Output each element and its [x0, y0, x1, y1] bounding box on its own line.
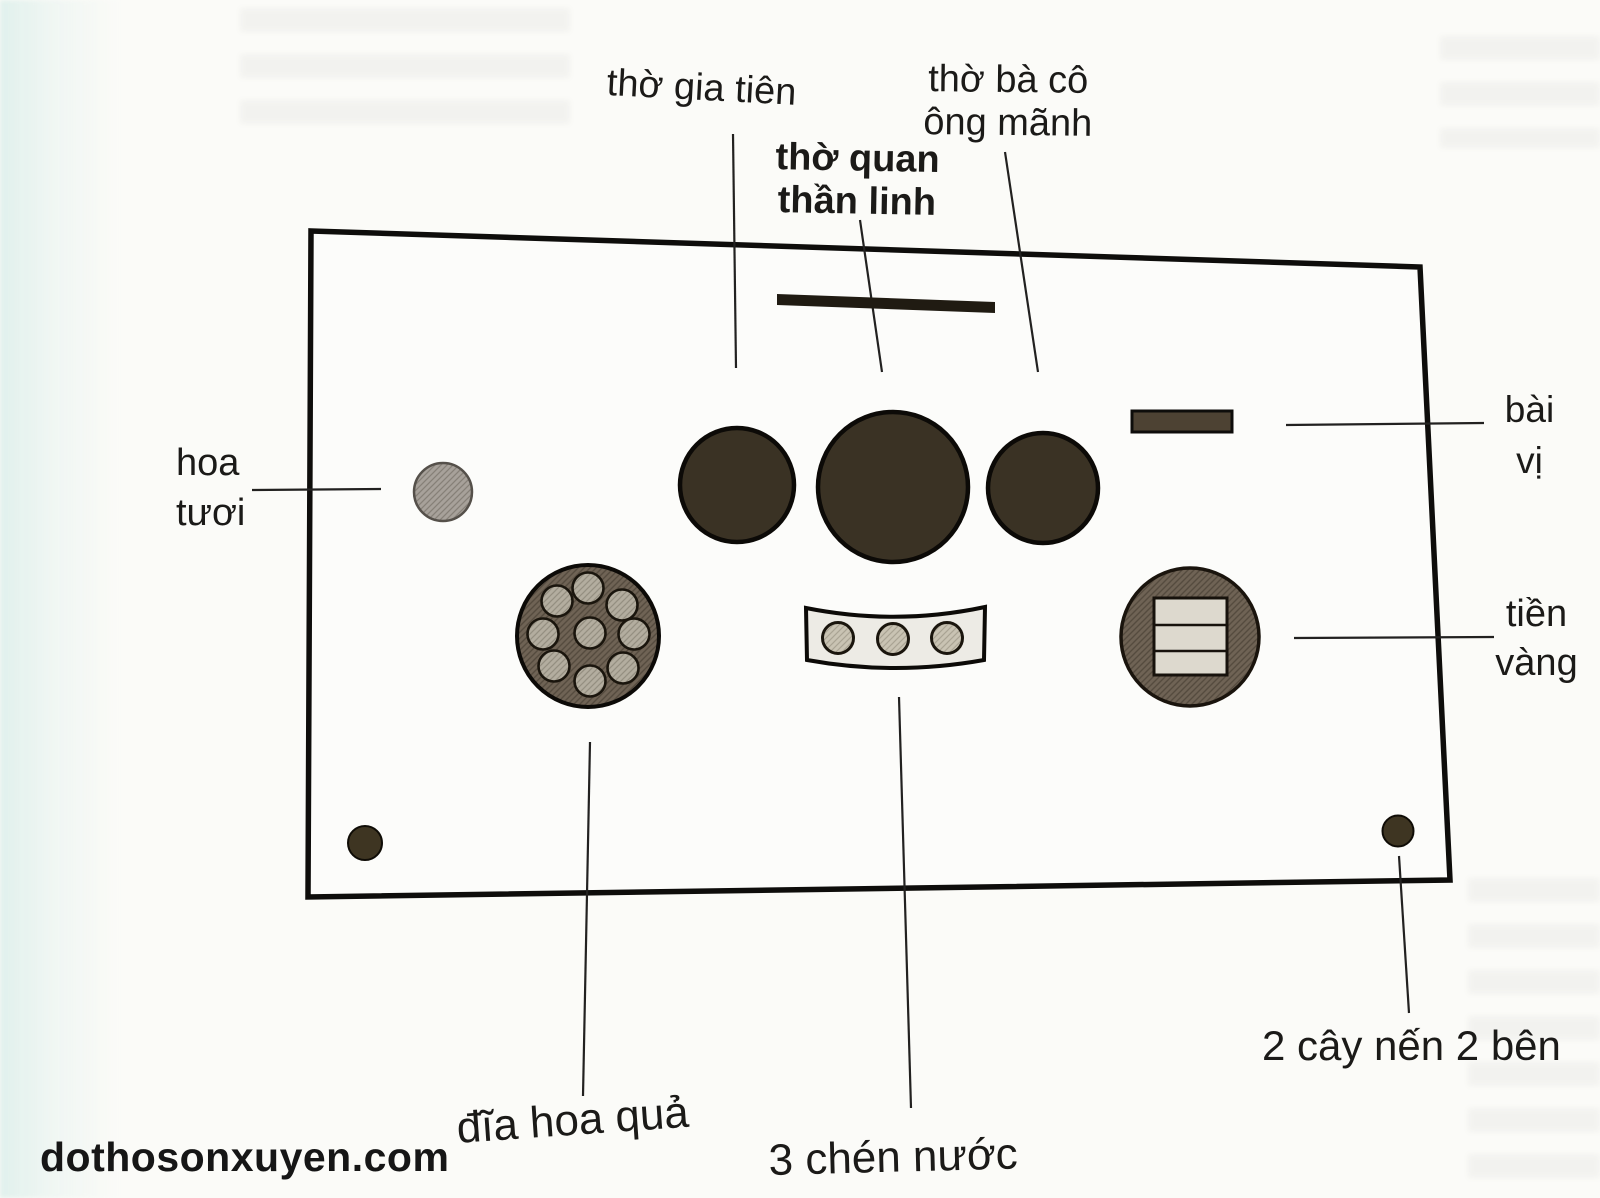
- fruit: [542, 586, 573, 617]
- candle-left: [348, 826, 382, 860]
- water-cup: [823, 623, 854, 654]
- fruit: [575, 666, 606, 697]
- label-ba-co-line2: ông mãnh: [915, 101, 1100, 145]
- label-ba-co-line1: thờ bà cô: [916, 58, 1101, 102]
- fruits: [528, 573, 650, 697]
- candle-right: [1383, 816, 1414, 847]
- bai-vi-tablet: [1132, 411, 1232, 432]
- water-cup: [932, 623, 963, 654]
- incense-bowl-center: [818, 412, 968, 562]
- altar-table-surface: [308, 231, 1450, 897]
- leader-hoa-tuoi: [252, 489, 381, 490]
- label-chen-nuoc: 3 chén nước: [768, 1129, 1018, 1185]
- fruit: [573, 573, 604, 604]
- water-cups: [823, 623, 963, 655]
- fruit: [528, 619, 559, 650]
- scanned-book-page: thờ gia tiên thờ quan thần linh thờ bà c…: [0, 0, 1600, 1198]
- label-hoa-tuoi-line1: hoa: [176, 438, 245, 488]
- label-bai-vi-line1: bài: [1492, 384, 1567, 435]
- fruit: [608, 653, 639, 684]
- leader-tien-vang: [1294, 637, 1494, 638]
- label-tien-vang-line1: tiền: [1474, 590, 1599, 639]
- label-tien-vang: tiền vàng: [1474, 590, 1599, 687]
- incense-bowl-right: [988, 433, 1098, 543]
- label-ba-co-ong-manh: thờ bà cô ông mãnh: [915, 58, 1101, 145]
- label-bai-vi-line2: vị: [1492, 435, 1567, 486]
- fruit: [539, 651, 570, 682]
- money-paper-stack: [1154, 598, 1227, 675]
- fruit: [607, 590, 638, 621]
- water-cup: [878, 624, 909, 655]
- label-quan-than-linh: thờ quan thần linh: [767, 136, 948, 224]
- fruit: [575, 618, 606, 649]
- label-bai-vi: bài vị: [1492, 384, 1567, 486]
- label-tien-vang-line2: vàng: [1474, 639, 1599, 688]
- watermark-url: dothosonxuyen.com: [40, 1134, 449, 1181]
- incense-bowl-left: [680, 428, 794, 542]
- label-hoa-tuoi: hoa tươi: [176, 438, 245, 538]
- label-hoa-tuoi-line2: tươi: [176, 488, 245, 538]
- label-quan-line2: thần linh: [767, 179, 948, 225]
- flower-vase: [414, 463, 472, 521]
- fruit: [619, 619, 650, 650]
- label-cay-nen: 2 cây nến 2 bên: [1262, 1022, 1561, 1069]
